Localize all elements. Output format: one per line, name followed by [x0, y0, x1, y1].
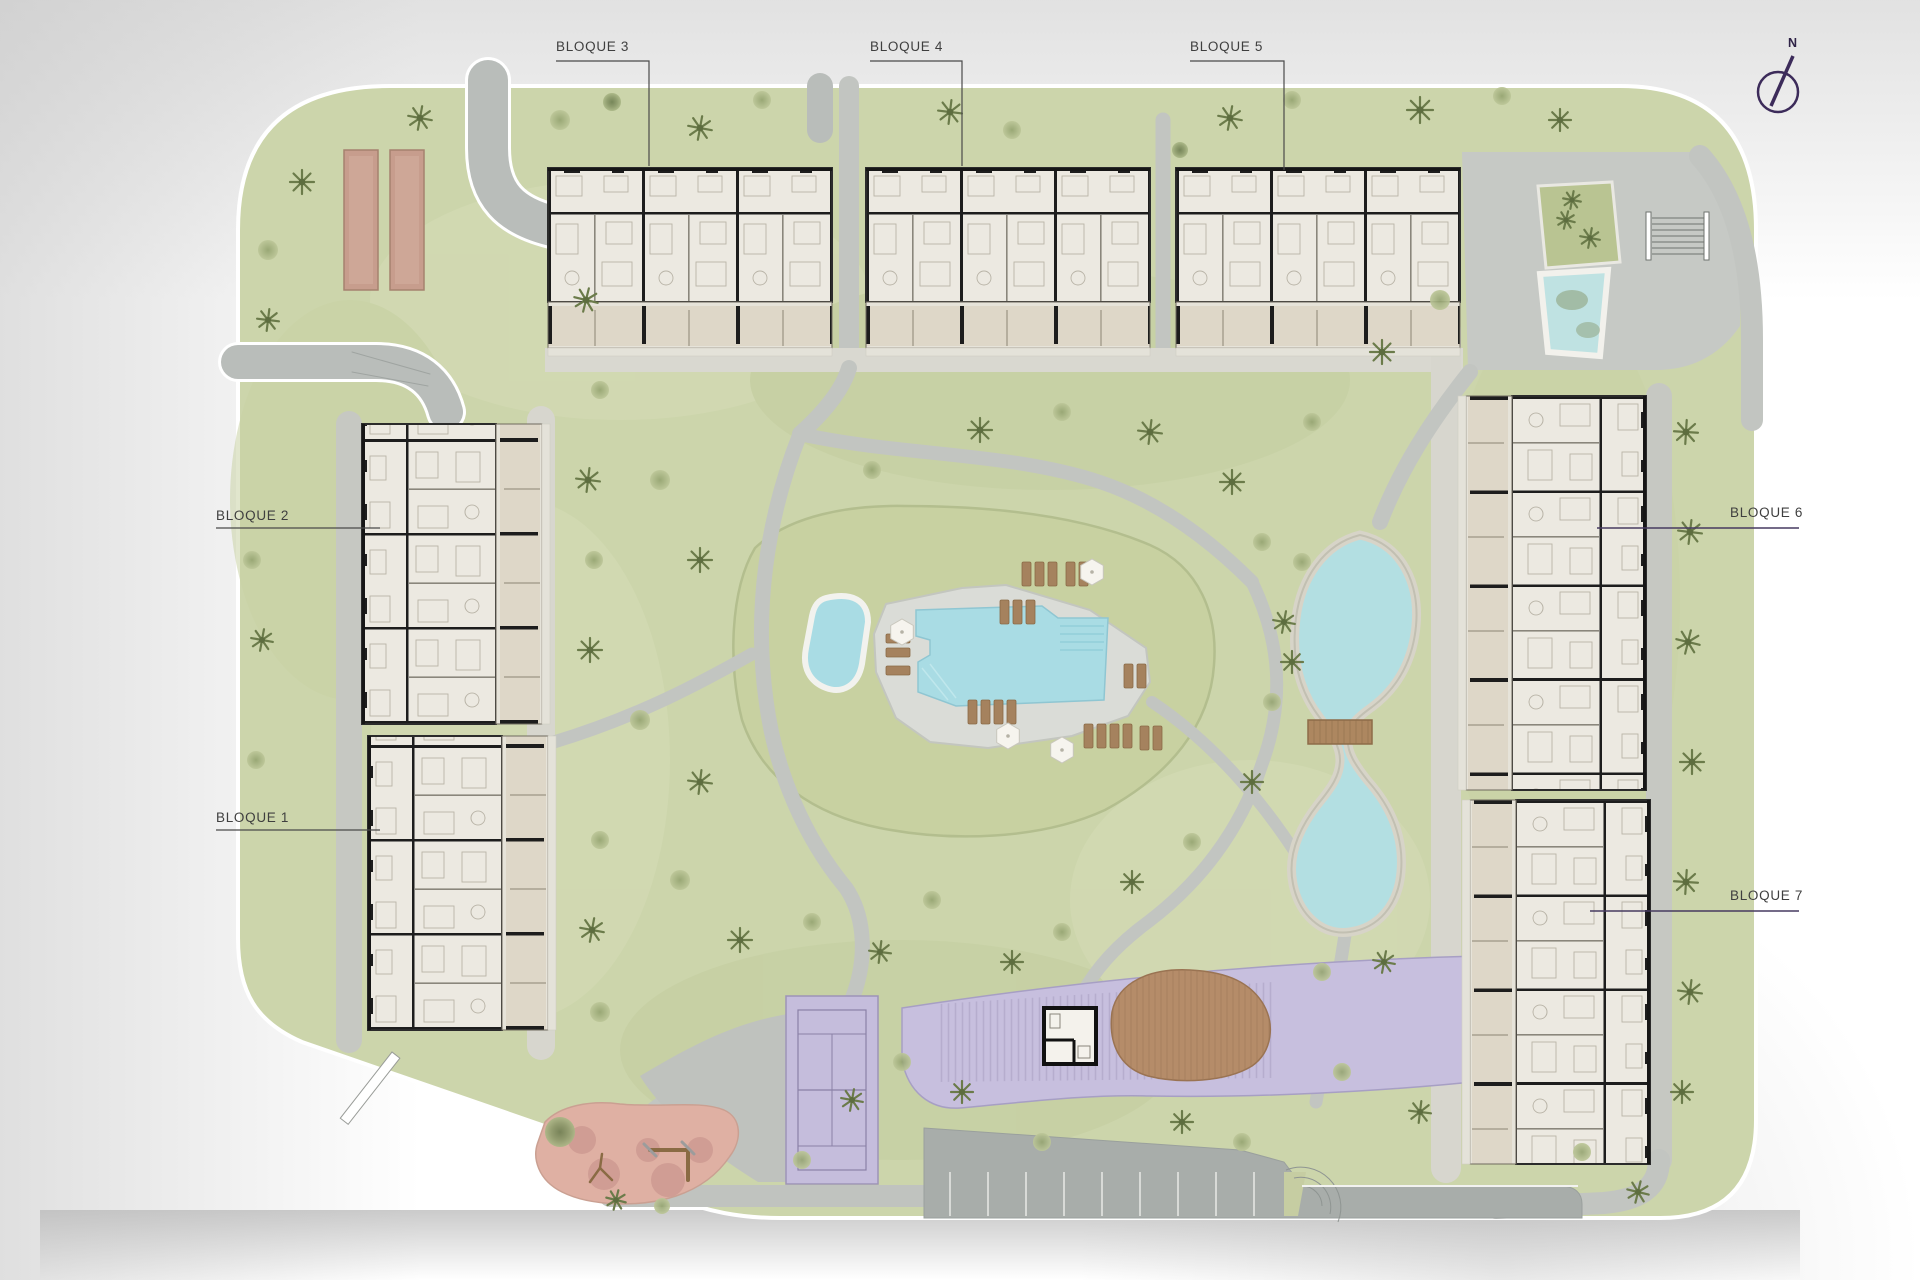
palm-tree-icon: [1674, 420, 1698, 444]
wood-bridge: [1308, 720, 1372, 744]
label-bloque-7: BLOQUE 7: [1730, 888, 1803, 903]
palm-tree-icon: [1220, 470, 1244, 494]
palm-tree-icon: [968, 418, 992, 442]
building-block: [866, 168, 1150, 356]
north-label: N: [1788, 36, 1797, 50]
palm-tree-icon: [1171, 1111, 1193, 1133]
palm-tree-icon: [1671, 1081, 1693, 1103]
building-block: [368, 736, 556, 1030]
small-plaza-pool: [1540, 270, 1608, 356]
palm-tree-icon: [688, 548, 712, 572]
label-bloque-5: BLOQUE 5: [1190, 39, 1263, 54]
palm-tree-icon: [1674, 870, 1698, 894]
palm-tree-icon: [1680, 750, 1704, 774]
palm-tree-icon: [1370, 340, 1394, 364]
palm-tree-icon: [1407, 97, 1433, 123]
building-block: [362, 424, 550, 724]
palm-tree-icon: [1549, 109, 1571, 131]
building-block: [548, 168, 832, 356]
palm-tree-icon: [1121, 871, 1143, 893]
palm-tree-icon: [1241, 771, 1263, 793]
kids-pool: [805, 596, 868, 690]
wood-deck: [1111, 970, 1270, 1081]
palm-tree-icon: [728, 928, 752, 952]
label-bloque-2: BLOQUE 2: [216, 508, 289, 523]
building-block: [1458, 396, 1646, 790]
label-bloque-6: BLOQUE 6: [1730, 505, 1803, 520]
label-bloque-3: BLOQUE 3: [556, 39, 629, 54]
building-block: [1176, 168, 1460, 356]
site-plan-drawing: [0, 0, 1920, 1280]
label-bloque-1: BLOQUE 1: [216, 810, 289, 825]
palm-tree-icon: [290, 170, 314, 194]
palm-tree-icon: [1001, 951, 1023, 973]
palm-tree-icon: [951, 1081, 973, 1103]
label-bloque-4: BLOQUE 4: [870, 39, 943, 54]
building-block: [1462, 800, 1650, 1164]
main-pool: [916, 606, 1108, 706]
palm-tree-icon: [578, 638, 602, 662]
palm-tree-icon: [1281, 651, 1303, 673]
gym-building: [1044, 1008, 1096, 1064]
site-plan-page: BLOQUE 3 BLOQUE 4 BLOQUE 5 BLOQUE 2 BLOQ…: [0, 0, 1920, 1280]
